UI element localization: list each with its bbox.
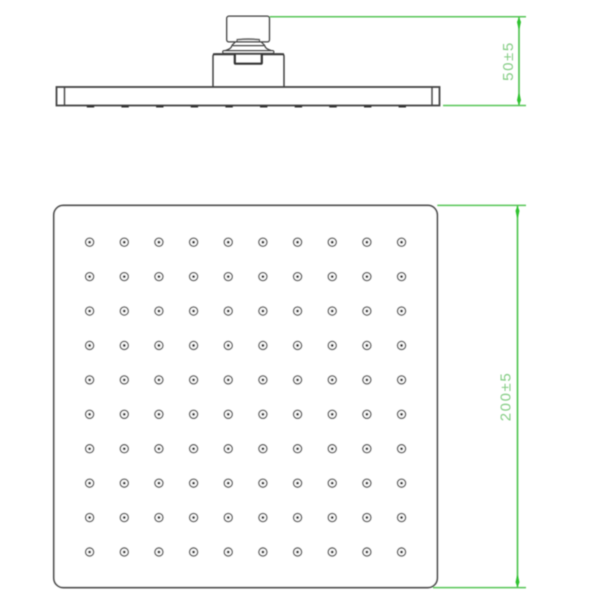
svg-text:50±5: 50±5 [500, 41, 517, 81]
svg-text:200±5: 200±5 [498, 372, 515, 422]
